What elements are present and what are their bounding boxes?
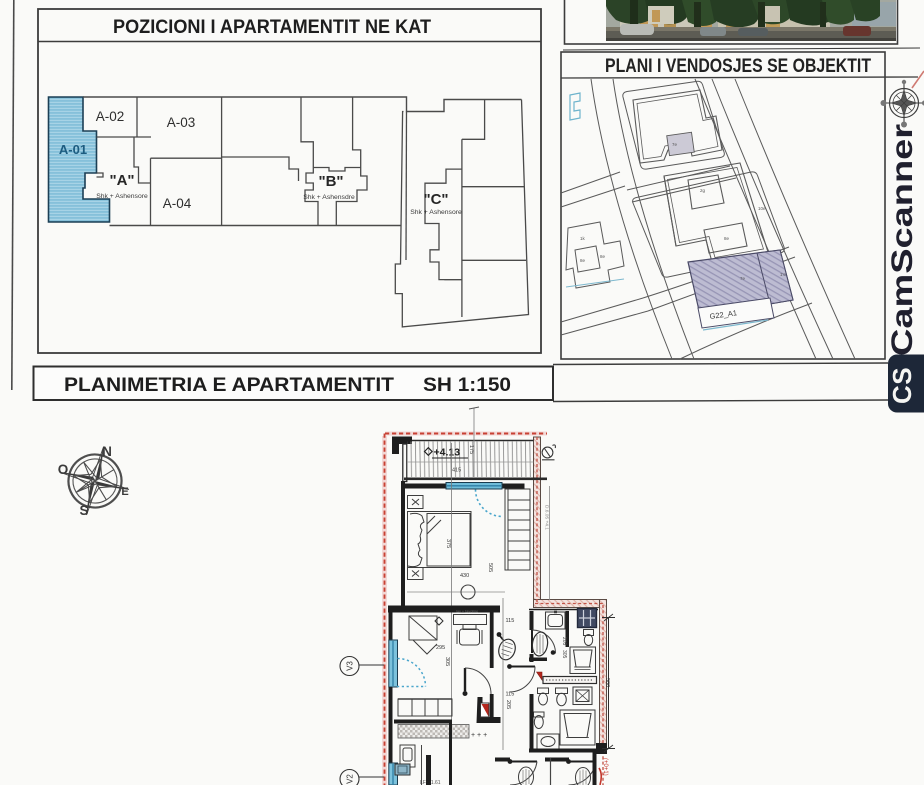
svg-text:2g: 2g xyxy=(700,188,706,193)
svg-text:8e: 8e xyxy=(580,258,586,263)
svg-text:115: 115 xyxy=(506,618,515,624)
svg-text:SH 1:150: SH 1:150 xyxy=(423,374,511,396)
svg-text:8e: 8e xyxy=(600,254,606,259)
svg-text:E: E xyxy=(121,486,128,498)
svg-text:N: N xyxy=(102,444,112,459)
svg-text:430: 430 xyxy=(460,573,469,579)
svg-text:CamScanner: CamScanner xyxy=(886,124,919,356)
svg-text:205: 205 xyxy=(505,700,511,709)
svg-text:A-02: A-02 xyxy=(96,109,125,124)
svg-text:PLANIMETRIA E APARTAMENTIT: PLANIMETRIA E APARTAMENTIT xyxy=(64,374,394,396)
svg-text:D.6.05 +4.1: D.6.05 +4.1 xyxy=(544,505,550,530)
svg-text:Shk + Ashensore: Shk + Ashensore xyxy=(96,193,148,200)
svg-text:7e: 7e xyxy=(740,276,746,281)
svg-text:7e: 7e xyxy=(672,142,678,147)
svg-text:305: 305 xyxy=(444,657,450,666)
svg-text:"A": "A" xyxy=(109,172,134,189)
svg-text:500: 500 xyxy=(604,678,610,687)
svg-text:V2: V2 xyxy=(346,774,355,784)
svg-text:Shk + Ashensore: Shk + Ashensore xyxy=(410,209,462,216)
svg-text:375: 375 xyxy=(445,539,451,548)
svg-text:1k: 1k xyxy=(580,236,586,241)
svg-text:1'e: 1'e xyxy=(780,272,786,277)
svg-text:(+0+1): (+0+1) xyxy=(602,758,608,776)
svg-text:lav + tavoline: lav + tavoline xyxy=(456,610,478,614)
svg-text:205: 205 xyxy=(561,637,567,646)
svg-text:"B": "B" xyxy=(318,173,343,190)
svg-text:A-03: A-03 xyxy=(167,115,196,130)
svg-text:A-04: A-04 xyxy=(163,196,192,211)
svg-text:175: 175 xyxy=(468,445,474,454)
svg-text:10e: 10e xyxy=(758,206,766,211)
svg-text:295: 295 xyxy=(436,645,445,651)
svg-text:+ + +: + + + xyxy=(471,732,487,739)
svg-text:PLANI I VENDOSJES SE OBJEKTIT: PLANI I VENDOSJES SE OBJEKTIT xyxy=(605,56,871,77)
svg-text:415: 415 xyxy=(452,468,461,474)
svg-text:A-01: A-01 xyxy=(59,142,87,157)
svg-text:Shk + Ashensdre: Shk + Ashensdre xyxy=(303,194,355,201)
svg-text:V3: V3 xyxy=(346,661,355,671)
svg-text:"C": "C" xyxy=(423,191,448,208)
svg-text:CS: CS xyxy=(887,367,917,404)
svg-text:+4.13: +4.13 xyxy=(434,447,461,459)
svg-text:O: O xyxy=(58,462,69,477)
svg-text:8e: 8e xyxy=(724,236,730,241)
svg-text:POZICIONI I APARTAMENTIT NE KA: POZICIONI I APARTAMENTIT NE KAT xyxy=(113,16,431,38)
svg-text:505: 505 xyxy=(487,563,493,572)
svg-text:S: S xyxy=(79,503,88,518)
svg-text:305: 305 xyxy=(561,650,567,659)
